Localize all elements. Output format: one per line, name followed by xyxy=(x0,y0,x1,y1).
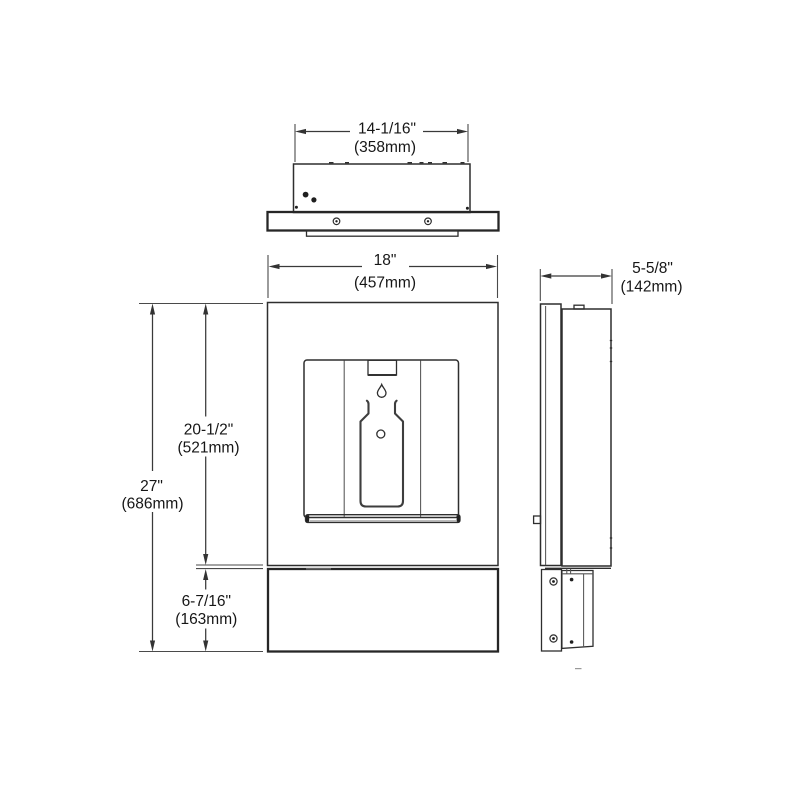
knockout-hole xyxy=(303,192,309,198)
screw-center xyxy=(427,220,429,222)
apron-outline xyxy=(268,569,498,652)
push-button xyxy=(377,430,385,438)
sensor-window xyxy=(368,360,397,375)
technical-drawing: 14-1/16" (358mm) 18" (457mm) xyxy=(0,0,800,800)
dim-arrow xyxy=(203,304,208,315)
dim-label-mm: (686mm) xyxy=(121,496,183,513)
dim-label-in: 14-1/16" xyxy=(358,121,416,138)
dim-label-in: 5-5/8" xyxy=(632,260,673,277)
dim-arrow xyxy=(203,569,208,580)
dim-apron-height: 6-7/16" (163mm) xyxy=(175,569,237,652)
dim-arrow xyxy=(457,129,468,134)
dim-arrow xyxy=(150,304,155,315)
dim-label-mm: (457mm) xyxy=(354,275,416,292)
dim-label-in: 6-7/16" xyxy=(182,593,231,610)
drip-tray-end xyxy=(306,515,309,522)
dim-label-mm: (521mm) xyxy=(177,440,239,457)
drip-tray-end xyxy=(457,515,460,522)
dim-arrow xyxy=(486,264,497,269)
mounting-bar xyxy=(268,212,499,231)
dim-arrow xyxy=(203,641,208,652)
dim-upper-height: 20-1/2" (521mm) xyxy=(177,304,239,566)
recessed-panel xyxy=(304,360,459,518)
top-fitting xyxy=(574,305,584,309)
dim-label-mm: (163mm) xyxy=(175,611,237,628)
knockout-hole xyxy=(311,197,316,202)
screw-center xyxy=(335,220,337,222)
cabinet-outline-top xyxy=(294,164,471,213)
dim-label-mm: (358mm) xyxy=(354,139,416,156)
dim-depth: 5-5/8" (142mm) xyxy=(540,260,682,304)
dim-arrow xyxy=(601,273,612,278)
dim-label-in: 20-1/2" xyxy=(184,422,233,439)
corner-fastener xyxy=(295,206,298,209)
front-panel-profile xyxy=(541,304,562,566)
bracket-top-edge xyxy=(562,569,593,574)
front-panel-outline xyxy=(268,303,499,566)
dim-label-in: 18" xyxy=(374,252,397,269)
dim-top-width: 14-1/16" (358mm) xyxy=(295,121,468,163)
screw-center xyxy=(552,637,555,640)
drip-tray-profile xyxy=(534,516,541,524)
dim-arrow xyxy=(540,273,551,278)
dim-label-mm: (142mm) xyxy=(620,279,682,296)
panel-seams xyxy=(344,361,420,518)
water-drop-icon xyxy=(377,385,386,398)
dim-arrow xyxy=(150,641,155,652)
body-profile xyxy=(562,309,611,566)
front-view xyxy=(268,303,499,652)
top-view xyxy=(268,163,499,237)
drawing-canvas: 14-1/16" (358mm) 18" (457mm) xyxy=(0,0,800,800)
dim-arrow xyxy=(203,554,208,565)
dim-overall-height: 27" (686mm) xyxy=(121,304,183,652)
bracket-rivet xyxy=(570,640,574,644)
mounting-bracket xyxy=(562,571,593,649)
dim-arrow xyxy=(295,129,306,134)
bottle-outline-icon xyxy=(361,401,404,507)
side-view xyxy=(534,304,613,669)
dim-label-in: 27" xyxy=(140,478,163,495)
bracket-rivet xyxy=(570,578,574,582)
extension-line-tray xyxy=(196,565,263,569)
dim-arrow xyxy=(269,264,280,269)
corner-fastener xyxy=(466,207,469,210)
screw-center xyxy=(552,580,555,583)
dim-front-width: 18" (457mm) xyxy=(268,252,498,298)
